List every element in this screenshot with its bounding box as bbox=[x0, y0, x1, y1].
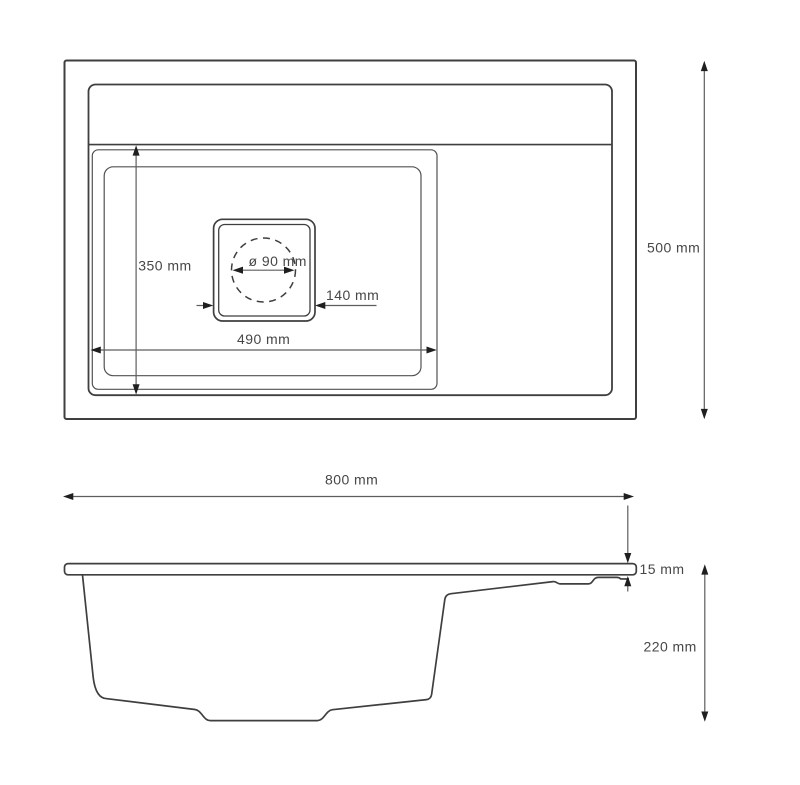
svg-text:800 mm: 800 mm bbox=[325, 472, 378, 488]
svg-text:500 mm: 500 mm bbox=[647, 240, 700, 256]
svg-text:ø 90 mm: ø 90 mm bbox=[249, 253, 307, 269]
svg-text:490 mm: 490 mm bbox=[237, 331, 290, 347]
svg-text:350 mm: 350 mm bbox=[138, 258, 191, 274]
svg-text:220 mm: 220 mm bbox=[644, 639, 697, 655]
svg-text:15 mm: 15 mm bbox=[640, 561, 685, 577]
svg-text:140 mm: 140 mm bbox=[326, 287, 379, 303]
